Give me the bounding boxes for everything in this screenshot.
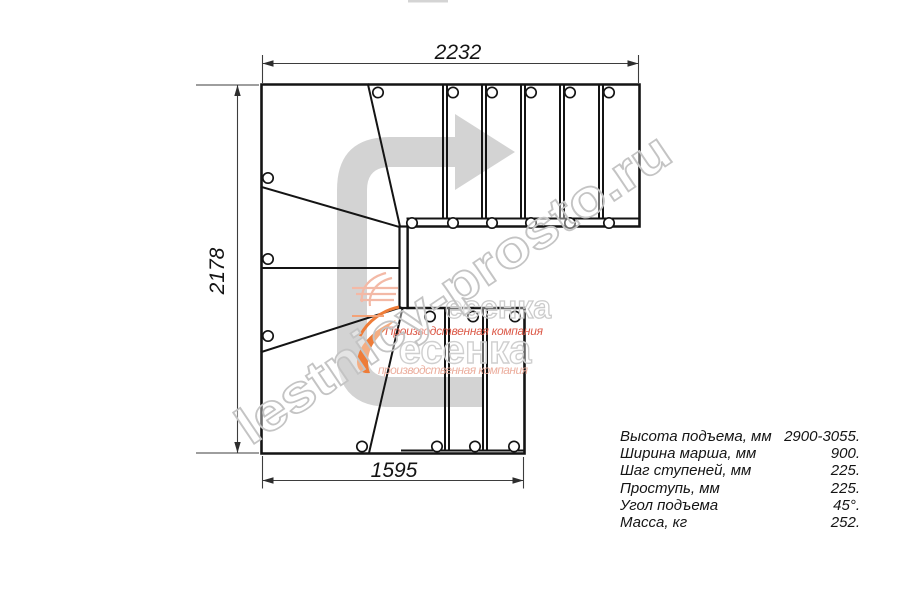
- spec-label: Проступь, мм: [620, 480, 720, 497]
- dimension-top-label: 2232: [434, 41, 482, 64]
- spec-label: Шаг ступеней, мм: [620, 462, 751, 479]
- spec-value: 225.: [831, 480, 860, 497]
- spec-row-mass: Масса, кг 252.: [620, 514, 860, 531]
- cropped-logo-artifact: [408, 0, 448, 3]
- dimension-left-label: 2178: [206, 247, 229, 295]
- spec-label: Высота подъема, мм: [620, 428, 772, 445]
- spec-row-height: Высота подъема, мм 2900-3055.: [620, 428, 860, 445]
- spec-row-angle: Угол подъема 45°.: [620, 497, 860, 514]
- spec-value: 900.: [831, 445, 860, 462]
- spec-label: Угол подъема: [620, 497, 718, 514]
- logo-subtitle-lower: производственная компания: [378, 363, 529, 377]
- spec-value: 45°.: [833, 497, 860, 514]
- spec-row-width: Ширина марша, мм 900.: [620, 445, 860, 462]
- spec-value: 252.: [831, 514, 860, 531]
- spec-value: 225.: [831, 462, 860, 479]
- spec-row-step: Шаг ступеней, мм 225.: [620, 462, 860, 479]
- dimension-bottom-label: 1595: [371, 459, 418, 482]
- staircase-drawing: 2232 2178 1595 есенка Производственная к…: [0, 0, 900, 600]
- spec-table: Высота подъема, мм 2900-3055. Ширина мар…: [620, 428, 860, 531]
- spec-label: Ширина марша, мм: [620, 445, 756, 462]
- spec-value: 2900-3055.: [784, 428, 860, 445]
- spec-label: Масса, кг: [620, 514, 687, 531]
- spec-row-tread: Проступь, мм 225.: [620, 480, 860, 497]
